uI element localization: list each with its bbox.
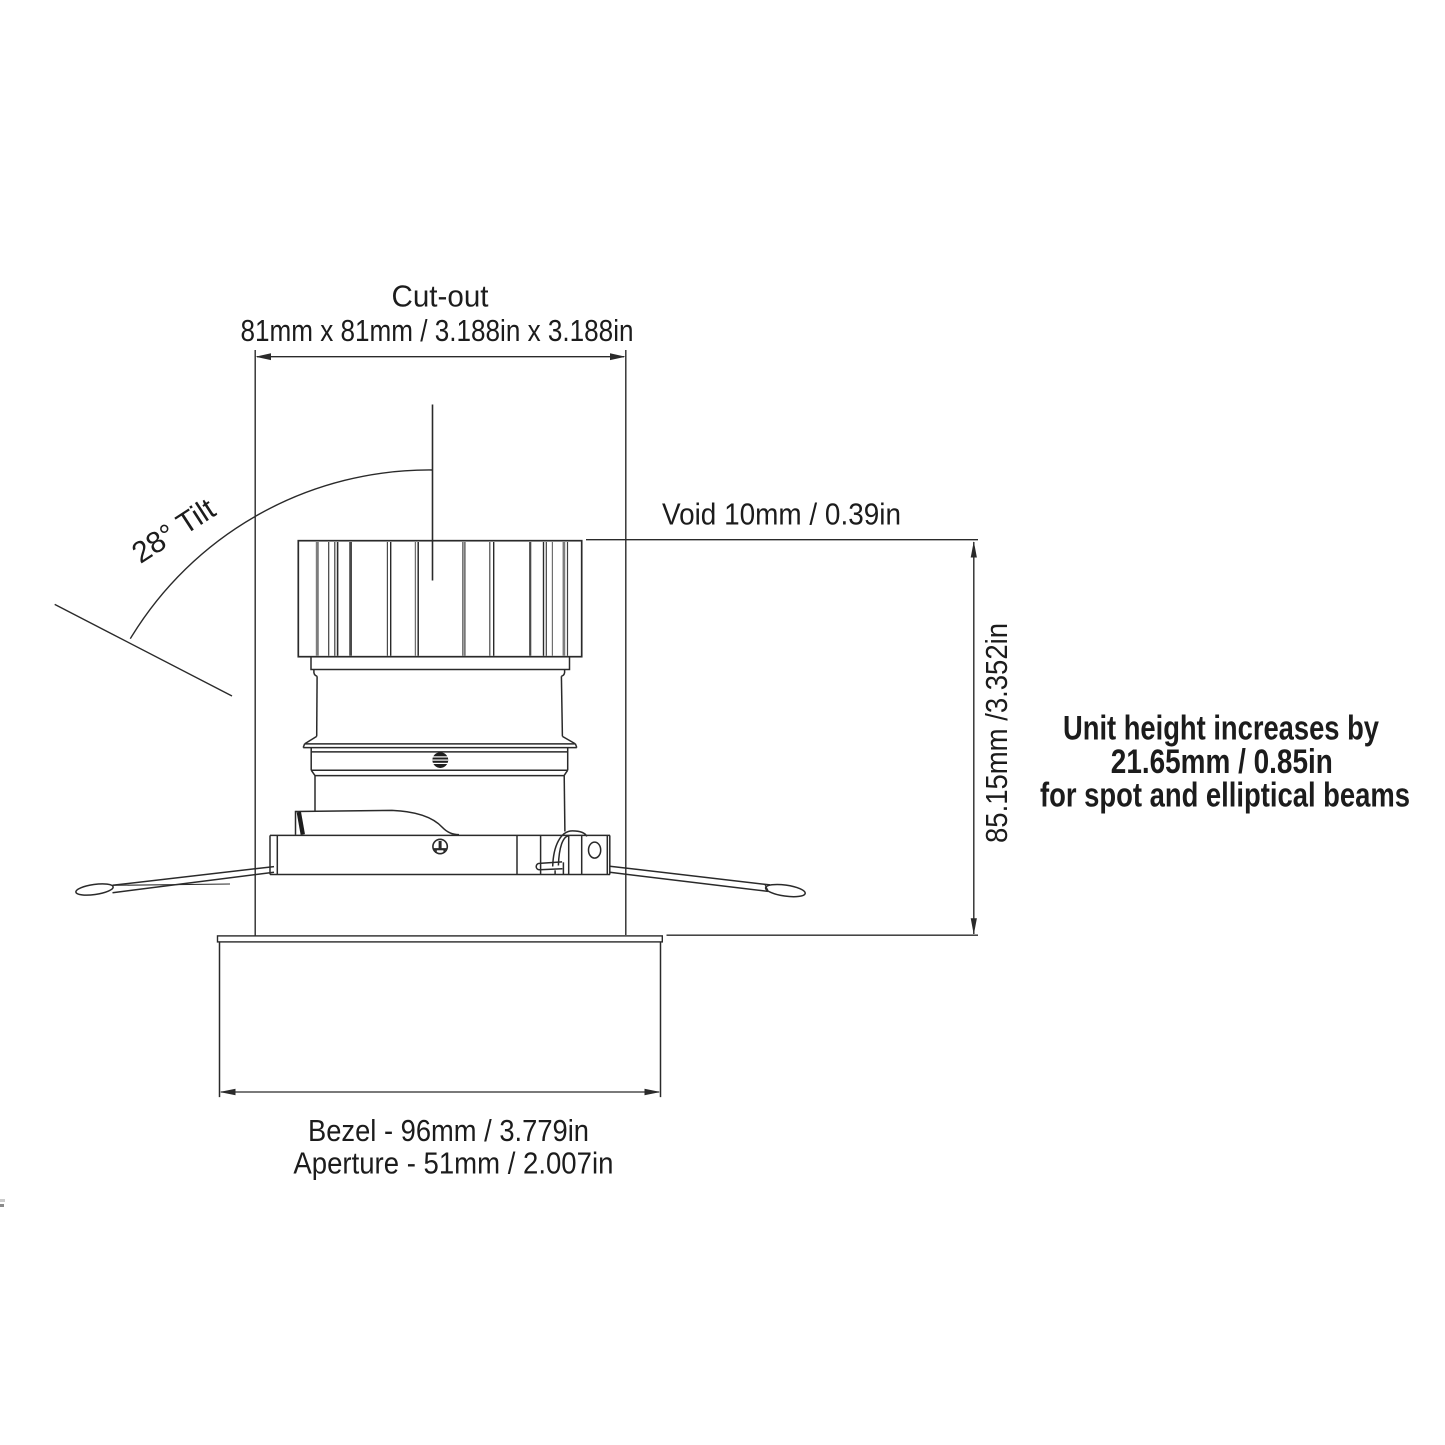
svg-text:28° Tilt: 28° Tilt <box>126 492 222 570</box>
svg-text:Void 10mm / 0.39in: Void 10mm / 0.39in <box>662 497 901 532</box>
svg-text:85.15mm /3.352in: 85.15mm /3.352in <box>979 623 1014 843</box>
svg-text:Aperture - 51mm / 2.007in: Aperture - 51mm / 2.007in <box>293 1146 613 1181</box>
svg-text:for spot and elliptical beams: for spot and elliptical beams <box>1040 777 1410 815</box>
svg-text:Unit height increases by: Unit height increases by <box>1063 710 1379 748</box>
svg-text:Bezel - 96mm / 3.779in: Bezel - 96mm / 3.779in <box>308 1113 589 1148</box>
svg-text:81mm x 81mm / 3.188in x 3.188i: 81mm x 81mm / 3.188in x 3.188in <box>241 313 634 348</box>
svg-text:21.65mm / 0.85in: 21.65mm / 0.85in <box>1111 743 1333 781</box>
svg-text:Cut-out: Cut-out <box>392 279 489 314</box>
